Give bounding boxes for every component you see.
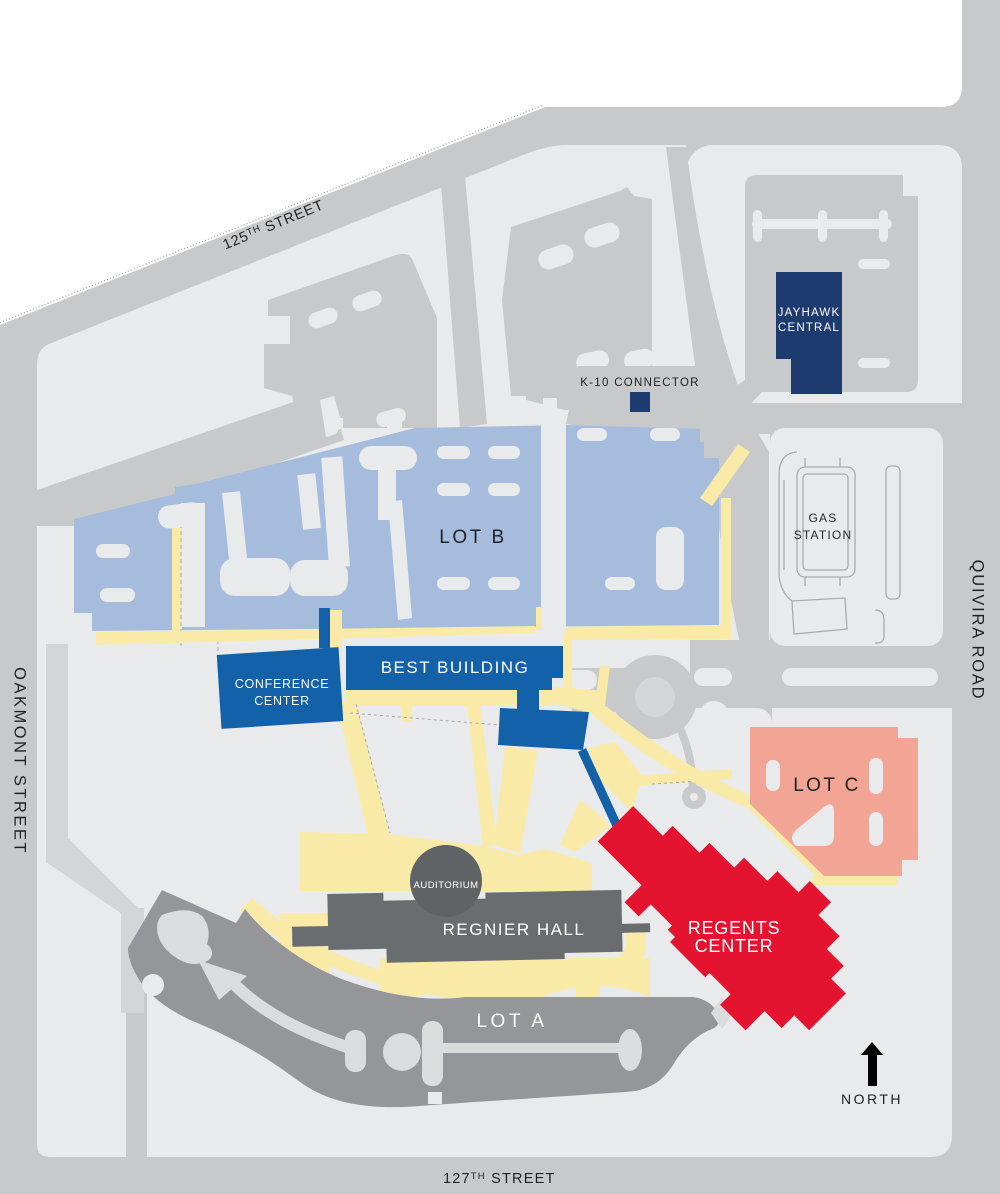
svg-text:CENTER: CENTER	[254, 694, 310, 708]
svg-text:AUDITORIUM: AUDITORIUM	[414, 880, 479, 891]
svg-text:OAKMONT STREET: OAKMONT STREET	[11, 667, 29, 855]
svg-text:GAS: GAS	[809, 511, 838, 525]
svg-text:QUIVIRA ROAD: QUIVIRA ROAD	[969, 560, 987, 701]
svg-text:CONFERENCE: CONFERENCE	[235, 677, 330, 691]
svg-text:CENTRAL: CENTRAL	[778, 322, 840, 334]
svg-text:REGNIER HALL: REGNIER HALL	[443, 920, 586, 939]
svg-text:LOT B: LOT B	[439, 527, 507, 548]
svg-text:BEST BUILDING: BEST BUILDING	[381, 658, 530, 677]
svg-text:LOT C: LOT C	[793, 775, 861, 796]
svg-text:CENTER: CENTER	[695, 936, 774, 956]
svg-text:NORTH: NORTH	[841, 1091, 903, 1107]
svg-text:JAYHAWK: JAYHAWK	[778, 307, 841, 319]
svg-text:STATION: STATION	[794, 528, 853, 542]
svg-text:127TH STREET: 127TH STREET	[443, 1171, 556, 1187]
svg-text:REGENTS: REGENTS	[688, 918, 781, 938]
svg-text:LOT A: LOT A	[476, 1011, 547, 1032]
svg-text:K-10 CONNECTOR: K-10 CONNECTOR	[580, 377, 700, 389]
